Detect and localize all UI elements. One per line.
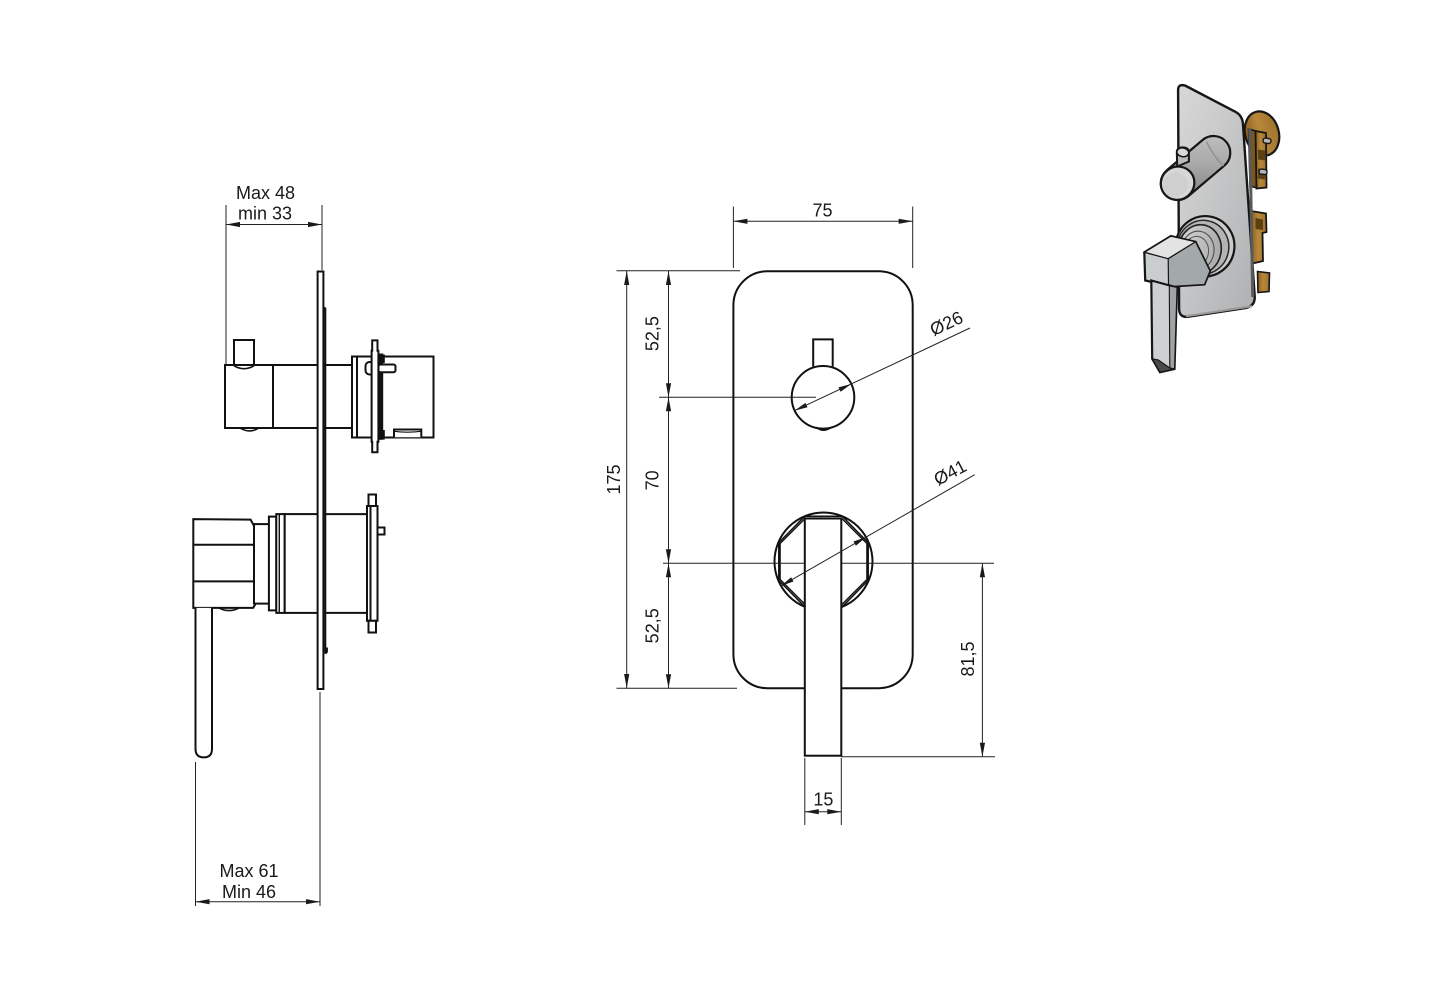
svg-text:Max 61: Max 61	[219, 861, 278, 881]
svg-text:52,5: 52,5	[643, 608, 663, 643]
svg-text:52,5: 52,5	[643, 316, 663, 351]
svg-text:70: 70	[643, 470, 663, 490]
svg-text:175: 175	[604, 464, 624, 494]
svg-text:15: 15	[813, 790, 833, 810]
svg-text:Min 46: Min 46	[222, 882, 276, 902]
svg-text:min 33: min 33	[238, 204, 292, 224]
svg-text:Max 48: Max 48	[236, 183, 295, 203]
svg-text:81,5: 81,5	[958, 641, 978, 676]
svg-text:75: 75	[812, 200, 832, 220]
